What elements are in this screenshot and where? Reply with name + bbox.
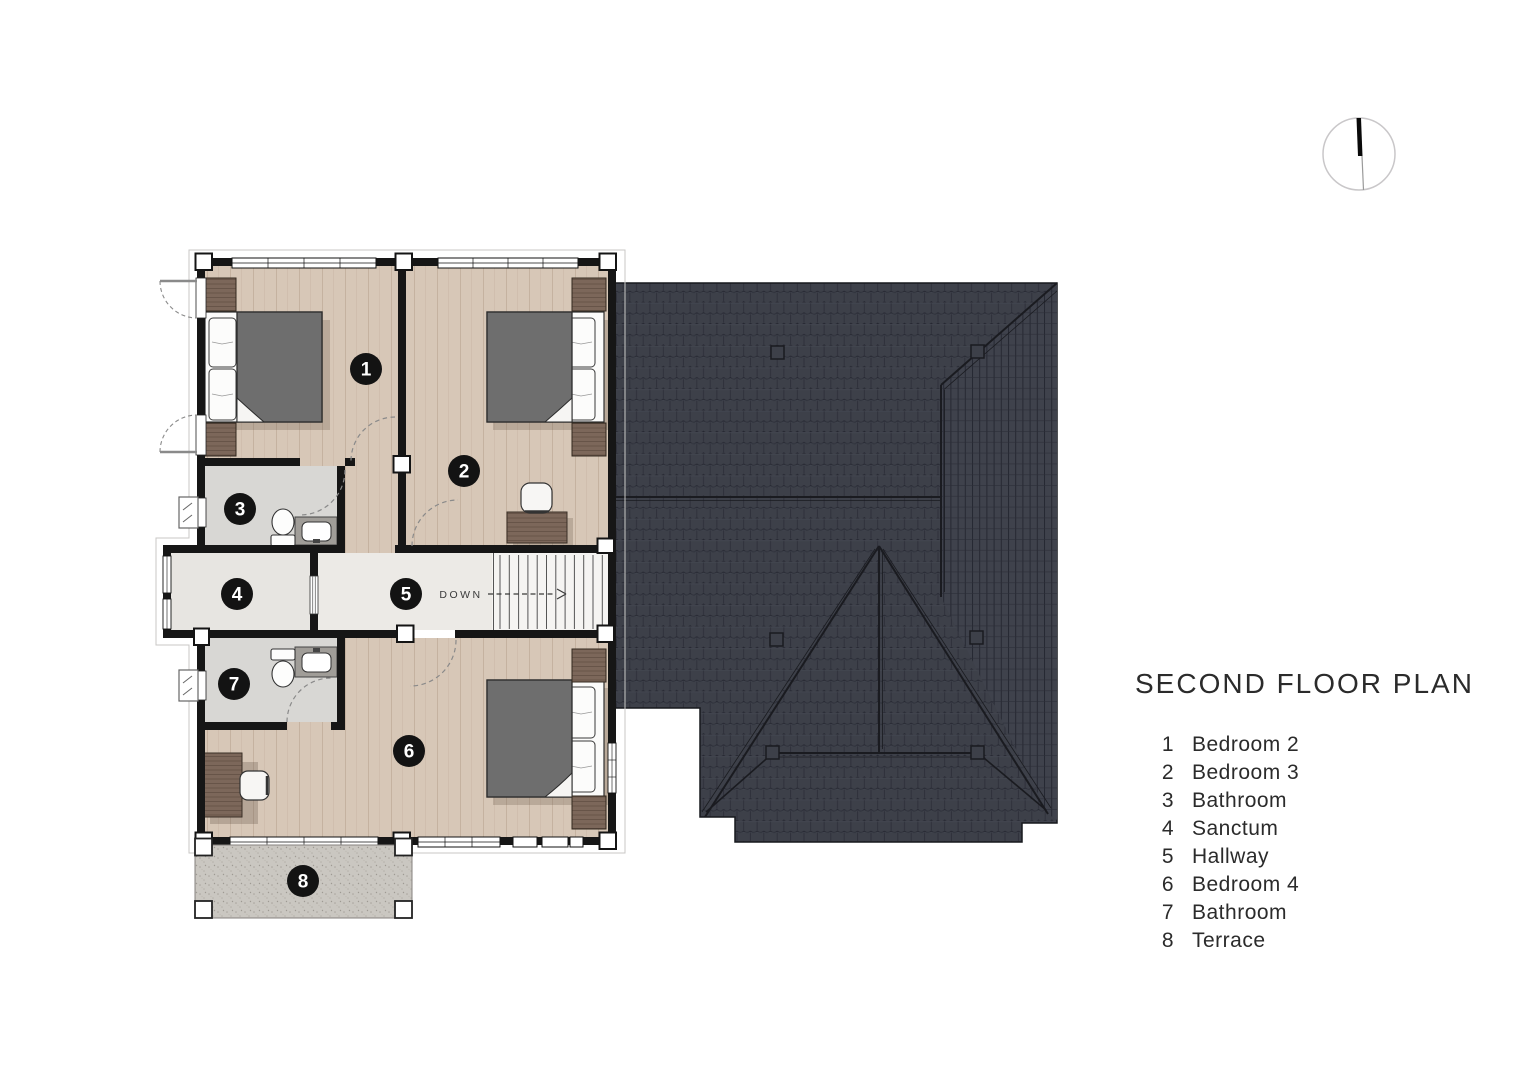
svg-text:5: 5 <box>401 585 412 606</box>
svg-text:2: 2 <box>459 462 470 483</box>
window-bottom-3 <box>513 837 583 847</box>
down-label: DOWN <box>439 589 482 601</box>
svg-text:4: 4 <box>232 585 243 606</box>
roof <box>614 283 1057 842</box>
legend-item-number: 6 <box>1150 871 1174 899</box>
legend-item-number: 7 <box>1150 899 1174 927</box>
svg-text:3: 3 <box>235 500 246 521</box>
sanctum-opening <box>310 576 318 614</box>
legend-item: 8Terrace <box>1150 927 1299 955</box>
room-badge-8: 8 <box>287 865 319 897</box>
page-title: SECOND FLOOR PLAN <box>1135 668 1474 700</box>
legend-item-number: 4 <box>1150 815 1174 843</box>
window-top-1 <box>232 258 376 268</box>
north-compass <box>1323 118 1395 190</box>
legend-item: 4Sanctum <box>1150 815 1299 843</box>
window-bottom-2 <box>418 837 500 847</box>
svg-text:8: 8 <box>298 872 309 893</box>
room-badge-2: 2 <box>448 455 480 487</box>
room-badge-5: 5 <box>390 578 422 610</box>
legend-item: 7Bathroom <box>1150 899 1299 927</box>
casement-window-1 <box>160 278 206 318</box>
casement-window-2 <box>160 415 206 455</box>
legend-item-label: Bathroom <box>1192 901 1287 924</box>
legend-item-label: Bedroom 4 <box>1192 873 1299 896</box>
legend-item-number: 2 <box>1150 759 1174 787</box>
legend-item: 5Hallway <box>1150 843 1299 871</box>
legend-item-number: 3 <box>1150 787 1174 815</box>
legend-item-label: Bedroom 3 <box>1192 761 1299 784</box>
legend-item-label: Sanctum <box>1192 817 1278 840</box>
legend: 1Bedroom 2 2Bedroom 3 3Bathroom 4Sanctum… <box>1150 731 1299 955</box>
staircase <box>492 553 608 630</box>
title-block: SECOND FLOOR PLAN <box>1135 668 1474 700</box>
bed-bedroom-4 <box>487 680 611 805</box>
legend-item-label: Hallway <box>1192 845 1269 868</box>
bed-bedroom-2 <box>205 312 330 430</box>
room-badge-7: 7 <box>218 668 250 700</box>
svg-text:6: 6 <box>404 742 415 763</box>
legend-item: 6Bedroom 4 <box>1150 871 1299 899</box>
legend-item-label: Terrace <box>1192 929 1266 952</box>
bed-bedroom-3 <box>487 312 611 430</box>
legend-item-label: Bathroom <box>1192 789 1287 812</box>
room-badge-3: 3 <box>224 493 256 525</box>
floor-plan-sheet: DOWN <box>0 0 1522 1076</box>
bathroom-3-window <box>179 497 206 528</box>
room-badge-4: 4 <box>221 578 253 610</box>
window-sanctum <box>163 556 171 629</box>
legend-item-number: 8 <box>1150 927 1174 955</box>
legend-item-number: 5 <box>1150 843 1174 871</box>
svg-text:1: 1 <box>361 360 372 381</box>
room-badge-1: 1 <box>350 353 382 385</box>
legend-item: 2Bedroom 3 <box>1150 759 1299 787</box>
bathroom-7-window <box>179 670 206 701</box>
window-bedroom-4 <box>608 743 616 793</box>
legend-item: 1Bedroom 2 <box>1150 731 1299 759</box>
svg-text:7: 7 <box>229 675 240 696</box>
room-badge-6: 6 <box>393 735 425 767</box>
legend-item: 3Bathroom <box>1150 787 1299 815</box>
legend-item-label: Bedroom 2 <box>1192 733 1299 756</box>
compass-needle-icon <box>1357 118 1363 156</box>
window-top-2 <box>438 258 578 268</box>
legend-item-number: 1 <box>1150 731 1174 759</box>
